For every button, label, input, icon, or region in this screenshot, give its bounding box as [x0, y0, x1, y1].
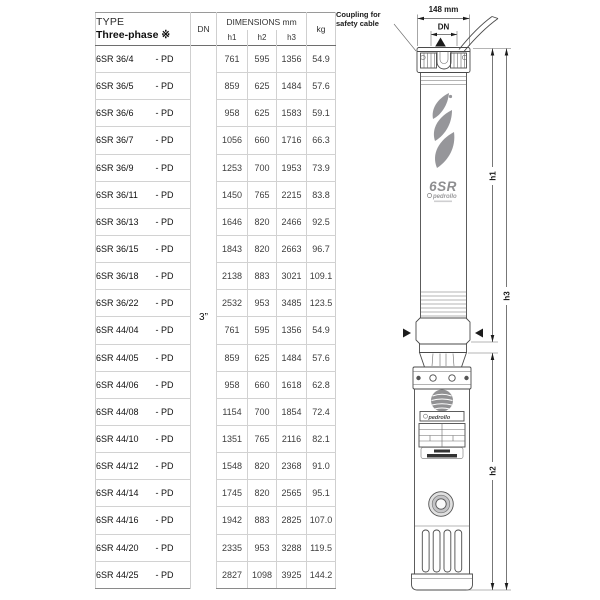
kg-value: 92.5 [307, 208, 336, 235]
h1-value: 1942 [217, 507, 248, 534]
model-suffix: - PD [156, 54, 174, 64]
h1-value: 761 [217, 46, 248, 73]
type-cell: 6SR 36/9 - PD [96, 154, 191, 181]
h2-dim-label: h2 [488, 466, 497, 476]
table-row: 6SR 36/15 - PD 1843 820 2663 96.7 [96, 235, 336, 262]
dimensions-header: DIMENSIONS mm [217, 13, 307, 31]
model-name: 6SR 36/6 [96, 108, 153, 118]
h3-value: 2116 [277, 425, 307, 452]
table-row: 6SR 44/10 - PD 1351 765 2116 82.1 [96, 425, 336, 452]
dn-column-header: DN [191, 13, 217, 46]
h2-value: 595 [248, 46, 277, 73]
model-name: 6SR 36/13 [96, 217, 153, 227]
type-cell: 6SR 36/11 - PD [96, 181, 191, 208]
h2-value: 595 [248, 317, 277, 344]
table-row: 6SR 44/05 - PD 859 625 1484 57.6 [96, 344, 336, 371]
type-cell: 6SR 44/12 - PD [96, 453, 191, 480]
h3-value: 2565 [277, 480, 307, 507]
kg-value: 66.3 [307, 127, 336, 154]
stamped-text-badge [421, 448, 463, 459]
kg-value: 123.5 [307, 290, 336, 317]
leader-line [394, 24, 416, 51]
h3-value: 1484 [277, 73, 307, 100]
type-cell: 6SR 44/08 - PD [96, 398, 191, 425]
h1-value: 2138 [217, 263, 248, 290]
table-row: 6SR 44/06 - PD 958 660 1618 62.8 [96, 371, 336, 398]
model-suffix: - PD [156, 380, 174, 390]
h3-value: 1484 [277, 344, 307, 371]
model-name: 6SR 44/25 [96, 570, 153, 580]
model-name: 6SR 44/12 [96, 461, 153, 471]
model-suffix: - PD [156, 570, 174, 580]
kg-value: 54.9 [307, 46, 336, 73]
model-suffix: - PD [156, 325, 174, 335]
h2-value: 625 [248, 73, 277, 100]
type-cell: 6SR 44/05 - PD [96, 344, 191, 371]
h2-value: 820 [248, 480, 277, 507]
type-cell: 6SR 44/25 - PD [96, 561, 191, 588]
kg-value: 57.6 [307, 73, 336, 100]
table-row: 6SR 44/20 - PD 2335 953 3288 119.5 [96, 534, 336, 561]
h1-value: 1056 [217, 127, 248, 154]
h1-value: 2827 [217, 561, 248, 588]
h3-value: 1356 [277, 317, 307, 344]
motor-brand-text: pedrollo [428, 415, 451, 421]
h3-value: 1953 [277, 154, 307, 181]
pump-body: 6SR pedrollo [421, 73, 467, 319]
model-name: 6SR 36/11 [96, 190, 153, 200]
brand-text: pedrollo [432, 194, 457, 200]
h3-value: 1618 [277, 371, 307, 398]
table-row: 6SR 44/12 - PD 1548 820 2368 91.0 [96, 453, 336, 480]
model-suffix: - PD [156, 244, 174, 254]
kg-value: 62.8 [307, 371, 336, 398]
power-cable [459, 17, 498, 53]
type-cell: 6SR 36/4 - PD [96, 46, 191, 73]
h2-value: 820 [248, 453, 277, 480]
h1-column-header: h1 [217, 30, 248, 45]
brand-logo-small: pedrollo [427, 193, 457, 202]
h1-value: 1745 [217, 480, 248, 507]
motor-port-icon [429, 492, 454, 517]
kg-value: 72.4 [307, 398, 336, 425]
kg-value: 59.1 [307, 100, 336, 127]
model-name: 6SR 36/15 [96, 244, 153, 254]
motor-section: pedrollo [412, 344, 473, 590]
dimension-lines: h1 h2 h3 [466, 49, 513, 591]
type-cell: 6SR 44/06 - PD [96, 371, 191, 398]
h3-value: 1583 [277, 100, 307, 127]
coupling-label-line2: safety cable [336, 19, 379, 28]
h3-value: 3021 [277, 263, 307, 290]
h3-dim-label: h3 [502, 291, 511, 301]
model-suffix: - PD [156, 543, 174, 553]
model-name: 6SR 44/20 [96, 543, 153, 553]
table-row: 6SR 36/13 - PD 1646 820 2466 92.5 [96, 208, 336, 235]
model-suffix: - PD [156, 407, 174, 417]
h3-value: 2663 [277, 235, 307, 262]
spec-table-body: 6SR 36/4 - PD 3”761 595 1356 54.9 6SR 36… [96, 46, 336, 589]
model-name: 6SR 44/06 [96, 380, 153, 390]
h1-value: 1253 [217, 154, 248, 181]
width-dim-label: 148 mm [429, 5, 459, 14]
h1-value: 859 [217, 73, 248, 100]
h1-value: 1351 [217, 425, 248, 452]
table-row: 6SR 44/08 - PD 1154 700 1854 72.4 [96, 398, 336, 425]
h3-value: 2368 [277, 453, 307, 480]
kg-value: 83.8 [307, 181, 336, 208]
h2-value: 700 [248, 154, 277, 181]
model-suffix: - PD [156, 271, 174, 281]
model-name: 6SR 44/04 [96, 325, 153, 335]
h2-value: 660 [248, 371, 277, 398]
phase-label: Three-phase ※ [96, 29, 190, 42]
intake-arrow-right-icon [475, 329, 483, 338]
dimension-h2: h2 [487, 353, 499, 590]
kg-value: 95.1 [307, 480, 336, 507]
h3-value: 3925 [277, 561, 307, 588]
coupling-note: Coupling for safety cable [336, 10, 416, 51]
kg-value: 91.0 [307, 453, 336, 480]
coupling-label-line1: Coupling for [336, 10, 381, 19]
type-cell: 6SR 44/20 - PD [96, 534, 191, 561]
model-name: 6SR 44/16 [96, 515, 153, 525]
type-cell: 6SR 44/14 - PD [96, 480, 191, 507]
motor-brand-plate: pedrollo [420, 412, 464, 422]
h2-value: 820 [248, 235, 277, 262]
h3-value: 2466 [277, 208, 307, 235]
table-row: 6SR 36/7 - PD 1056 660 1716 66.3 [96, 127, 336, 154]
spec-table-header: TYPE Three-phase ※ DN DIMENSIONS mm kg h… [96, 13, 336, 46]
catalog-page: Coupling for safety cable 148 mm DN [0, 0, 600, 600]
pump-head [417, 48, 470, 73]
bottom-cap [412, 574, 473, 590]
kg-value: 54.9 [307, 317, 336, 344]
h3-value: 1854 [277, 398, 307, 425]
type-cell: 6SR 36/18 - PD [96, 263, 191, 290]
h2-column-header: h2 [248, 30, 277, 45]
type-cell: 6SR 44/04 - PD [96, 317, 191, 344]
model-suffix: - PD [156, 190, 174, 200]
h2-value: 820 [248, 208, 277, 235]
h2-value: 953 [248, 534, 277, 561]
h1-value: 1450 [217, 181, 248, 208]
model-suffix: - PD [156, 488, 174, 498]
spec-table-container: TYPE Three-phase ※ DN DIMENSIONS mm kg h… [95, 12, 335, 589]
dn-value-cell: 3” [191, 46, 217, 589]
dimension-dn: DN [431, 23, 457, 47]
h2-value: 700 [248, 398, 277, 425]
model-name: 6SR 36/9 [96, 163, 153, 173]
h1-value: 1646 [217, 208, 248, 235]
kg-value: 82.1 [307, 425, 336, 452]
model-logo-text: 6SR [429, 179, 457, 194]
type-cell: 6SR 36/15 - PD [96, 235, 191, 262]
type-cell: 6SR 44/10 - PD [96, 425, 191, 452]
h2-value: 765 [248, 181, 277, 208]
motor-emblem-icon [431, 390, 453, 412]
dn-dim-label: DN [438, 23, 450, 32]
model-name: 6SR 36/4 [96, 54, 153, 64]
table-row: 6SR 44/14 - PD 1745 820 2565 95.1 [96, 480, 336, 507]
h1-value: 2532 [217, 290, 248, 317]
type-column-header: TYPE Three-phase ※ [96, 13, 191, 46]
h3-value: 2215 [277, 181, 307, 208]
intake-arrow-left-icon [403, 329, 411, 338]
h3-column-header: h3 [277, 30, 307, 45]
h3-value: 1356 [277, 46, 307, 73]
model-suffix: - PD [156, 515, 174, 525]
suction-strainer [403, 318, 483, 344]
h3-value: 3288 [277, 534, 307, 561]
model-suffix: - PD [156, 135, 174, 145]
type-label: TYPE [96, 16, 190, 29]
model-name: 6SR 36/5 [96, 81, 153, 91]
h1-value: 1154 [217, 398, 248, 425]
table-row: 6SR 44/25 - PD 2827 1098 3925 144.2 [96, 561, 336, 588]
model-name: 6SR 44/10 [96, 434, 153, 444]
type-cell: 6SR 36/6 - PD [96, 100, 191, 127]
dimension-h1: h1 [487, 49, 499, 343]
motor-data-plate [419, 424, 465, 448]
model-suffix: - PD [156, 81, 174, 91]
kg-value: 57.6 [307, 344, 336, 371]
kg-value: 119.5 [307, 534, 336, 561]
model-name: 6SR 36/7 [96, 135, 153, 145]
kg-value: 96.7 [307, 235, 336, 262]
h2-value: 765 [248, 425, 277, 452]
table-row: 6SR 36/22 - PD 2532 953 3485 123.5 [96, 290, 336, 317]
h2-value: 1098 [248, 561, 277, 588]
kg-value: 144.2 [307, 561, 336, 588]
model-suffix: - PD [156, 217, 174, 227]
model-suffix: - PD [156, 108, 174, 118]
model-suffix: - PD [156, 353, 174, 363]
model-name: 6SR 44/14 [96, 488, 153, 498]
h3-value: 3485 [277, 290, 307, 317]
model-name: 6SR 36/22 [96, 298, 153, 308]
h1-value: 1548 [217, 453, 248, 480]
h2-value: 625 [248, 100, 277, 127]
h1-value: 1843 [217, 235, 248, 262]
table-row: 6SR 36/5 - PD 859 625 1484 57.6 [96, 73, 336, 100]
model-name: 6SR 44/08 [96, 407, 153, 417]
kg-value: 73.9 [307, 154, 336, 181]
h1-value: 958 [217, 100, 248, 127]
dimension-h3: h3 [501, 49, 513, 591]
h1-value: 859 [217, 344, 248, 371]
h2-value: 883 [248, 263, 277, 290]
h2-value: 660 [248, 127, 277, 154]
type-cell: 6SR 36/7 - PD [96, 127, 191, 154]
type-cell: 6SR 36/5 - PD [96, 73, 191, 100]
kg-value: 107.0 [307, 507, 336, 534]
table-row: 6SR 44/04 - PD 761 595 1356 54.9 [96, 317, 336, 344]
brand-flame-icon [433, 93, 455, 168]
h1-value: 761 [217, 317, 248, 344]
h2-value: 883 [248, 507, 277, 534]
cooling-slots [422, 530, 461, 572]
table-row: 6SR 36/9 - PD 1253 700 1953 73.9 [96, 154, 336, 181]
model-suffix: - PD [156, 461, 174, 471]
table-row: 6SR 36/18 - PD 2138 883 3021 109.1 [96, 263, 336, 290]
h3-value: 2825 [277, 507, 307, 534]
type-cell: 6SR 36/13 - PD [96, 208, 191, 235]
flow-arrow-icon [435, 38, 446, 47]
model-suffix: - PD [156, 298, 174, 308]
model-suffix: - PD [156, 163, 174, 173]
h3-value: 1716 [277, 127, 307, 154]
h2-value: 953 [248, 290, 277, 317]
h1-value: 2335 [217, 534, 248, 561]
spec-table: TYPE Three-phase ※ DN DIMENSIONS mm kg h… [95, 12, 336, 589]
h2-value: 625 [248, 344, 277, 371]
table-row: 6SR 44/16 - PD 1942 883 2825 107.0 [96, 507, 336, 534]
h1-value: 958 [217, 371, 248, 398]
type-cell: 6SR 44/16 - PD [96, 507, 191, 534]
kg-value: 109.1 [307, 263, 336, 290]
type-cell: 6SR 36/22 - PD [96, 290, 191, 317]
model-suffix: - PD [156, 434, 174, 444]
table-row: 6SR 36/11 - PD 1450 765 2215 83.8 [96, 181, 336, 208]
model-name: 6SR 36/18 [96, 271, 153, 281]
h1-dim-label: h1 [488, 171, 497, 181]
model-name: 6SR 44/05 [96, 353, 153, 363]
table-row: 6SR 36/6 - PD 958 625 1583 59.1 [96, 100, 336, 127]
table-row: 6SR 36/4 - PD 3”761 595 1356 54.9 [96, 46, 336, 73]
kg-column-header: kg [307, 13, 336, 46]
